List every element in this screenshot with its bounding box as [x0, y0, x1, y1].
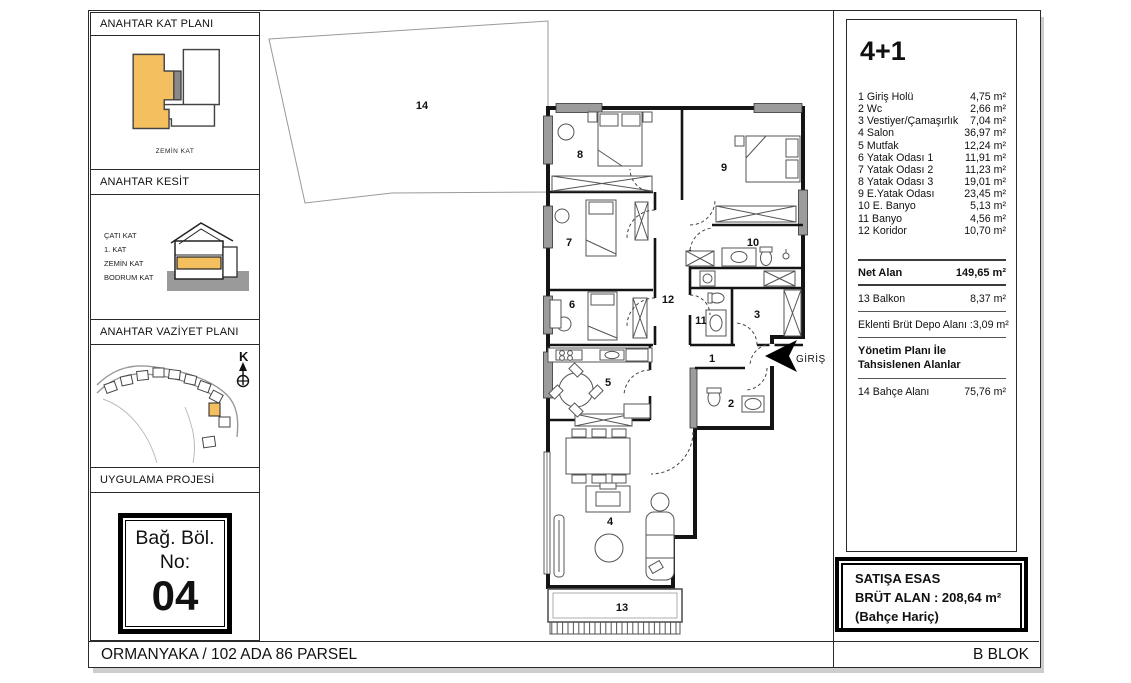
floor-label-1kat: 1. KAT [104, 245, 126, 254]
drawing-sheet: 1 2 3 4 5 6 7 8 9 10 11 12 13 14 GİRİŞ A… [0, 0, 1131, 683]
area-row: 12Koridor10,70 m² [858, 225, 1006, 237]
key-section-diagram [165, 213, 251, 303]
unit-box-line1: Bağ. Böl. [128, 526, 222, 550]
sidebar-header-label: ANAHTAR KESİT [100, 176, 189, 188]
room-area-list: 1Giriş Holü4,75 m² 2Wc2,66 m² 3Vestiyer/… [858, 91, 1006, 237]
key-plan-panel: ZEMİN KAT [90, 35, 260, 170]
sidebar-header-label: ANAHTAR KAT PLANI [100, 18, 213, 30]
key-plan-diagram [91, 40, 259, 150]
area-row: 10E. Banyo5,13 m² [858, 200, 1006, 212]
unit-box-line2: No: [128, 550, 222, 574]
key-plan-caption: ZEMİN KAT [91, 148, 259, 155]
sidebar-header-label: UYGULAMA PROJESİ [100, 474, 214, 486]
sidebar-header-key-plan: ANAHTAR KAT PLANI [90, 12, 260, 36]
sidebar-header-key-section: ANAHTAR KESİT [90, 169, 260, 195]
area-row: 7Yatak Odası 211,23 m² [858, 164, 1006, 176]
sidebar-header-site-plan: ANAHTAR VAZİYET PLANI [90, 319, 260, 345]
panel-divider-line [833, 10, 834, 667]
sidebar-header-label: ANAHTAR VAZİYET PLANI [100, 326, 239, 338]
area-row: 8Yatak Odası 319,01 m² [858, 176, 1006, 188]
area-row: 1Giriş Holü4,75 m² [858, 91, 1006, 103]
site-plan-panel: K [90, 344, 260, 468]
key-section-panel: ÇATI KAT 1. KAT ZEMİN KAT BODRUM KAT [90, 194, 260, 320]
sales-line1: SATIŞA ESAS [855, 569, 1014, 588]
area-row: 6Yatak Odası 111,91 m² [858, 152, 1006, 164]
floor-label-cati: ÇATI KAT [104, 231, 137, 240]
sales-line3: (Bahçe Hariç) [855, 607, 1014, 626]
gross-area-box: SATIŞA ESAS BRÜT ALAN : 208,64 m² (Bahçe… [835, 557, 1028, 632]
balcony-row: 13 Balkon 8,37 m² [858, 286, 1006, 311]
svg-text:K: K [239, 349, 249, 364]
sales-line2: BRÜT ALAN : 208,64 m² [855, 588, 1014, 607]
area-row: 2Wc2,66 m² [858, 103, 1006, 115]
area-row: 4Salon36,97 m² [858, 127, 1006, 139]
net-area-row: Net Alan 149,65 m² [858, 261, 1006, 284]
north-compass-icon: K [238, 349, 250, 387]
unit-number-panel: Bağ. Böl. No: 04 [90, 492, 260, 641]
site-plan-diagram: K [91, 345, 259, 467]
garden-row: 14 Bahçe Alanı 75,76 m² [858, 379, 1006, 404]
unit-number-box: Bağ. Böl. No: 04 [118, 513, 232, 634]
area-row: 3Vestiyer/Çamaşırlık7,04 m² [858, 115, 1006, 127]
site-plan-highlighted-unit [209, 403, 220, 416]
depot-row: Eklenti Brüt Depo Alanı : 3,09 m² [858, 312, 1006, 337]
area-row: 9E.Yatak Odası23,45 m² [858, 188, 1006, 200]
unit-type-title: 4+1 [860, 36, 1006, 67]
block-label: B BLOK [834, 641, 1039, 666]
floor-label-bodrum: BODRUM KAT [104, 273, 153, 282]
area-row: 11Banyo4,56 m² [858, 213, 1006, 225]
management-areas-title: Yönetim Planı İle Tahsislenen Alanlar [858, 338, 1006, 378]
project-title: ORMANYAKA / 102 ADA 86 PARSEL [89, 641, 833, 666]
area-row: 5Mutfak12,24 m² [858, 140, 1006, 152]
floor-label-zemin: ZEMİN KAT [104, 259, 143, 268]
sidebar-header-project: UYGULAMA PROJESİ [90, 467, 260, 493]
unit-number: 04 [128, 574, 222, 618]
unit-info-panel: 4+1 1Giriş Holü4,75 m² 2Wc2,66 m² 3Vesti… [846, 19, 1017, 552]
